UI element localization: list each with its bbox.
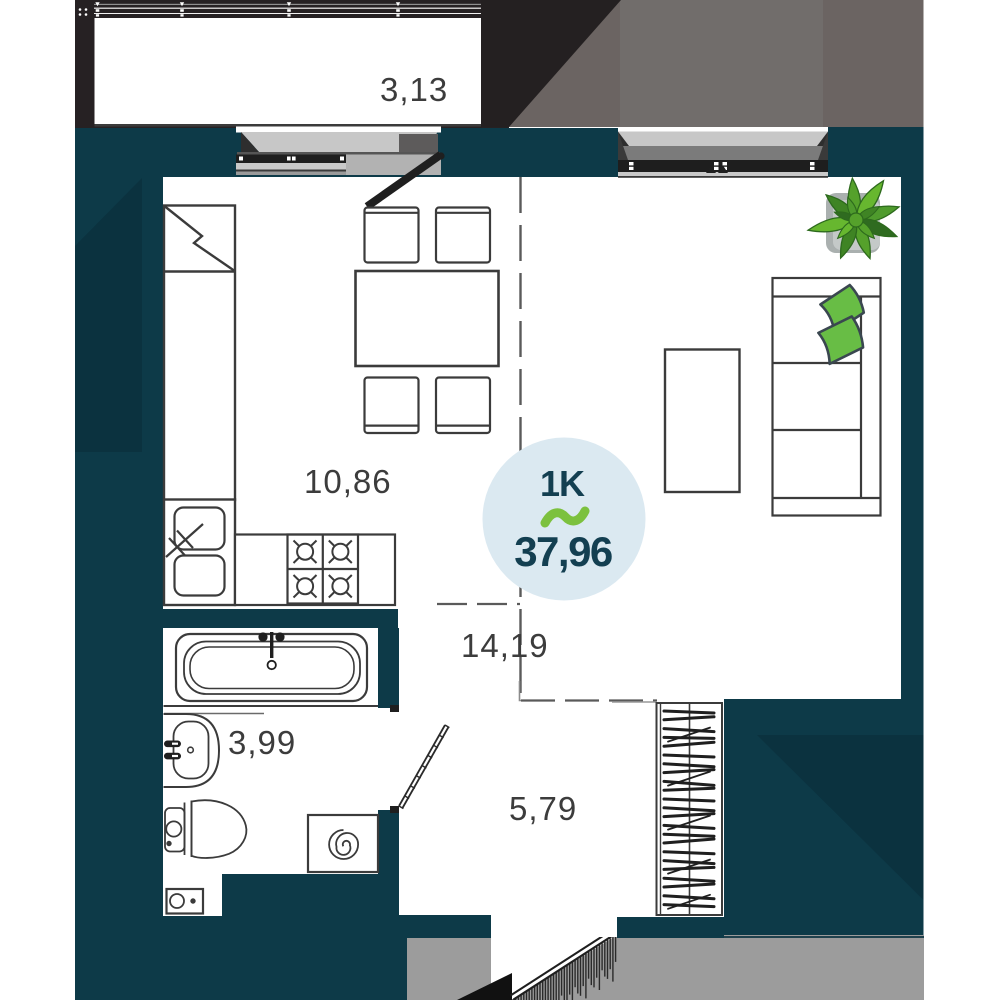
svg-text:37,96: 37,96 — [514, 528, 612, 575]
svg-text:3,99: 3,99 — [228, 724, 296, 761]
svg-text:10,86: 10,86 — [304, 463, 392, 500]
svg-text:3,13: 3,13 — [380, 71, 448, 108]
svg-text:14,19: 14,19 — [461, 627, 549, 664]
svg-text:5,79: 5,79 — [509, 790, 577, 827]
svg-text:1K: 1K — [540, 463, 585, 504]
